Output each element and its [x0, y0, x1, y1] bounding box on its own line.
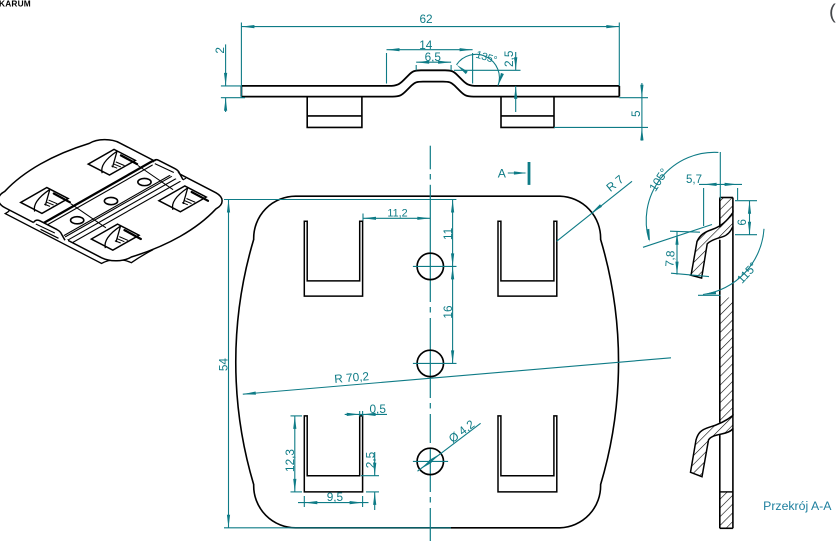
svg-text:5,7: 5,7 — [686, 174, 702, 186]
svg-text:11: 11 — [441, 228, 455, 240]
svg-text:9,5: 9,5 — [327, 490, 344, 504]
svg-text:6: 6 — [735, 219, 749, 226]
svg-text:0,5: 0,5 — [369, 402, 386, 416]
svg-text:2,5: 2,5 — [502, 50, 516, 67]
svg-text:A: A — [498, 166, 507, 180]
svg-text:11,2: 11,2 — [387, 208, 407, 220]
svg-text:62: 62 — [419, 12, 432, 26]
svg-text:135°: 135° — [474, 49, 498, 67]
svg-text:105°: 105° — [646, 166, 671, 194]
svg-text:115°: 115° — [734, 259, 760, 286]
svg-text:54: 54 — [217, 358, 231, 372]
svg-text:(: ( — [829, 1, 836, 24]
svg-text:12,3: 12,3 — [283, 449, 297, 472]
svg-text:R 7: R 7 — [603, 172, 626, 194]
svg-text:6,5: 6,5 — [425, 50, 442, 64]
svg-text:R 70,2: R 70,2 — [334, 369, 370, 386]
svg-text:5: 5 — [629, 110, 643, 117]
svg-text:Ø 4,2: Ø 4,2 — [446, 417, 477, 446]
svg-text:16: 16 — [441, 305, 455, 319]
svg-text:2,5: 2,5 — [364, 451, 378, 468]
svg-text:7,8: 7,8 — [662, 250, 677, 268]
svg-text:KARUM: KARUM — [0, 0, 31, 8]
svg-text:2: 2 — [213, 47, 227, 54]
svg-text:Przekrój A-A: Przekrój A-A — [763, 499, 832, 513]
